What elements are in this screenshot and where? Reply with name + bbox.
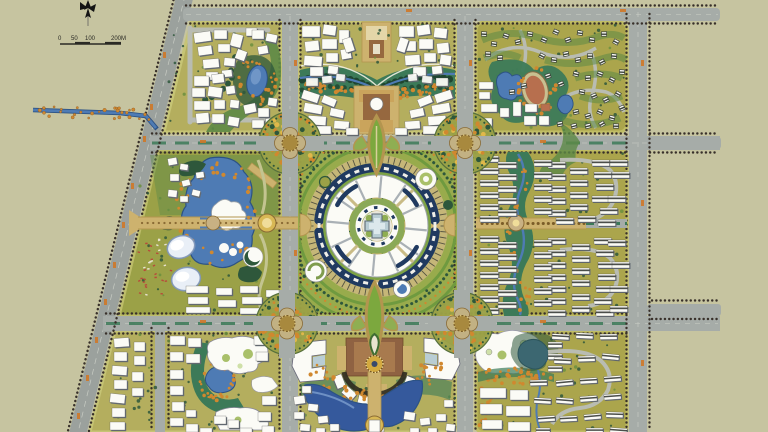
svg-text:100: 100 [85,36,96,42]
svg-text:200M: 200M [111,36,126,42]
svg-text:50: 50 [71,36,78,42]
